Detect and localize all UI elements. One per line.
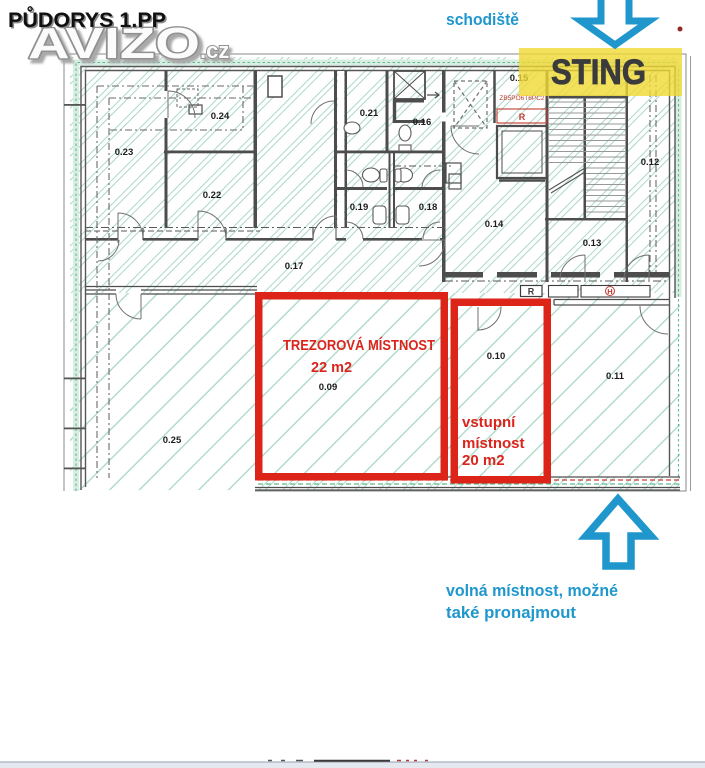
svg-text:R: R (528, 287, 535, 297)
svg-text:místnost: místnost (462, 435, 525, 452)
svg-text:TREZOROVÁ MÍSTNOST: TREZOROVÁ MÍSTNOST (283, 337, 435, 354)
svg-text:0.23: 0.23 (115, 147, 134, 158)
svg-text:vstupní: vstupní (462, 414, 516, 431)
svg-text:0.09: 0.09 (319, 382, 338, 393)
svg-text:.cz: .cz (200, 38, 229, 63)
svg-text:STING: STING (551, 53, 646, 92)
svg-text:0.12: 0.12 (641, 157, 660, 168)
svg-text:0.25: 0.25 (163, 435, 182, 446)
svg-text:volná místnost, možné: volná místnost, možné (446, 581, 618, 600)
svg-text:R: R (519, 112, 526, 122)
svg-text:0.17: 0.17 (285, 261, 304, 272)
svg-text:PŮDORYS 1.PP: PŮDORYS 1.PP (8, 4, 166, 32)
svg-text:0.11: 0.11 (606, 371, 625, 382)
svg-text:0.24: 0.24 (211, 111, 230, 122)
svg-text:také pronajmout: také pronajmout (446, 603, 576, 622)
svg-text:0.19: 0.19 (350, 202, 369, 213)
svg-text:0.21: 0.21 (360, 108, 379, 119)
svg-text:0.22: 0.22 (203, 190, 222, 201)
svg-text:H: H (607, 287, 612, 296)
svg-text:0.10: 0.10 (487, 351, 506, 362)
svg-text:20 m2: 20 m2 (462, 452, 505, 469)
svg-text:0.14: 0.14 (485, 219, 504, 230)
svg-text:0.16: 0.16 (413, 117, 432, 128)
svg-text:schodiště: schodiště (446, 10, 519, 29)
svg-text:0.18: 0.18 (419, 202, 438, 213)
svg-text:22 m2: 22 m2 (311, 360, 352, 376)
svg-text:0.13: 0.13 (583, 238, 602, 249)
